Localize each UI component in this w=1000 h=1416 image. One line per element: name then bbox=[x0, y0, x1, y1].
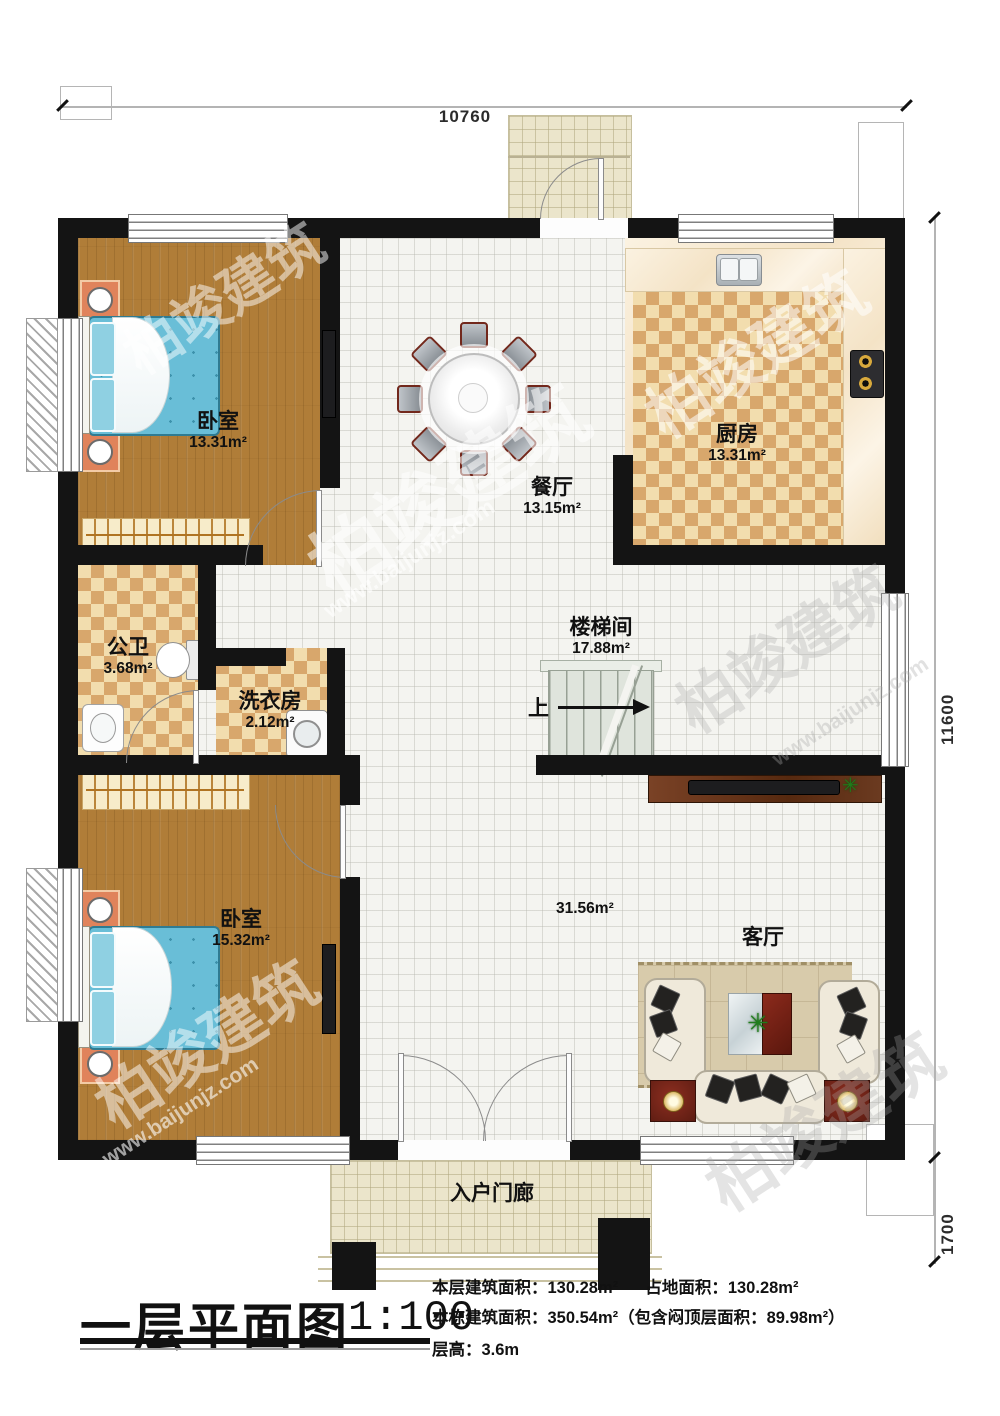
room-label-bedroom2: 卧室 15.32m² bbox=[212, 908, 270, 950]
wall-laundry-top bbox=[216, 648, 286, 666]
door-leaf bbox=[193, 690, 199, 764]
stairs-up-label: 上 bbox=[528, 692, 549, 722]
room-area: 13.15m² bbox=[523, 500, 581, 518]
dining-table-center bbox=[458, 383, 488, 413]
info-line-3: 层高：3.6m bbox=[432, 1336, 519, 1360]
dining-chair bbox=[460, 322, 488, 348]
room-name: 客厅 bbox=[742, 926, 784, 950]
room-label-entry-porch: 入户门廊 bbox=[450, 1182, 534, 1206]
wall-bedroom2-right bbox=[340, 877, 360, 1140]
room-area: 13.31m² bbox=[189, 434, 247, 452]
room-name: 公卫 bbox=[103, 636, 152, 660]
room-name: 卧室 bbox=[212, 908, 270, 932]
porch-pillar bbox=[332, 1242, 376, 1290]
dining-chair bbox=[460, 450, 488, 476]
window-shutter bbox=[26, 318, 58, 472]
room-name: 厨房 bbox=[708, 423, 766, 447]
wall-laundry-right bbox=[327, 648, 345, 755]
plant-icon: ✳ bbox=[842, 776, 859, 796]
side-table bbox=[824, 1080, 870, 1122]
wall-bedroom2-right-stub bbox=[340, 775, 360, 805]
tv bbox=[322, 944, 336, 1034]
room-label-bedroom1: 卧室 13.31m² bbox=[189, 410, 247, 452]
door-leaf bbox=[340, 805, 346, 879]
wardrobe bbox=[82, 772, 250, 810]
wall-stair-bottom bbox=[536, 755, 885, 775]
door-leaf bbox=[398, 1053, 404, 1142]
window-shutter bbox=[26, 868, 58, 1022]
room-area: 15.32m² bbox=[212, 932, 270, 950]
dining-chair bbox=[397, 385, 423, 413]
corner-reference-box bbox=[60, 86, 112, 120]
wall-bedroom2-top bbox=[58, 755, 360, 775]
stove-burner-icon bbox=[859, 355, 872, 368]
side-table bbox=[650, 1080, 696, 1122]
plant-icon: ✳ bbox=[747, 1010, 769, 1036]
room-label-dining: 餐厅 13.15m² bbox=[523, 476, 581, 518]
window bbox=[128, 214, 288, 243]
tv bbox=[322, 330, 336, 418]
room-label-laundry: 洗衣房 2.12m² bbox=[239, 690, 302, 732]
flue-box bbox=[858, 122, 904, 220]
floor-plan-page: { "watermark": { "logo": "柏竣建筑", "url": … bbox=[0, 0, 1000, 1416]
pillow bbox=[90, 378, 116, 432]
nightstand bbox=[80, 432, 120, 472]
lamp-icon bbox=[87, 287, 113, 313]
wall-bathroom-right bbox=[198, 565, 216, 690]
title-rule-thin bbox=[80, 1348, 430, 1350]
toilet-icon bbox=[156, 642, 190, 678]
room-name: 楼梯间 bbox=[570, 616, 633, 640]
door-leaf bbox=[598, 158, 604, 220]
nightstand bbox=[80, 280, 120, 320]
wall-kitchen-bottom bbox=[613, 545, 905, 565]
room-label-kitchen: 厨房 13.31m² bbox=[708, 423, 766, 465]
dining-chair bbox=[525, 385, 551, 413]
window bbox=[55, 868, 83, 1022]
stove-burner-icon bbox=[859, 377, 872, 390]
window bbox=[196, 1136, 350, 1165]
window bbox=[881, 593, 909, 767]
window bbox=[55, 318, 83, 472]
room-area: 17.88m² bbox=[570, 640, 633, 658]
wardrobe-rod bbox=[86, 789, 244, 791]
nightstand bbox=[80, 1044, 120, 1084]
dimension-top-value: 10760 bbox=[425, 107, 505, 127]
room-name: 入户门廊 bbox=[450, 1182, 534, 1206]
kitchen-counter-right bbox=[843, 248, 887, 558]
entrance-opening bbox=[398, 1140, 570, 1160]
living-area-value: 31.56m² bbox=[556, 900, 614, 918]
title-rule bbox=[80, 1338, 430, 1344]
nightstand bbox=[80, 890, 120, 930]
wall-bedroom1-bottom bbox=[58, 545, 263, 565]
tv bbox=[688, 780, 840, 795]
room-area: 13.31m² bbox=[708, 447, 766, 465]
room-name: 洗衣房 bbox=[239, 690, 302, 714]
door-leaf bbox=[316, 490, 322, 567]
basin-bowl bbox=[90, 713, 116, 743]
door-leaf bbox=[566, 1053, 572, 1142]
room-area: 2.12m² bbox=[239, 714, 302, 732]
room-name: 卧室 bbox=[189, 410, 247, 434]
lamp-icon bbox=[87, 897, 113, 923]
wash-basin bbox=[82, 704, 124, 752]
info-line-1: 本层建筑面积：130.28m² 占地面积：130.28m² bbox=[432, 1274, 798, 1298]
sink-basin bbox=[739, 258, 758, 281]
window bbox=[678, 214, 834, 243]
floor-area: 本层建筑面积：130.28m² bbox=[432, 1279, 618, 1297]
lamp-icon bbox=[663, 1091, 684, 1112]
room-label-living: 客厅 bbox=[742, 926, 784, 950]
room-label-stairwell: 楼梯间 17.88m² bbox=[570, 616, 633, 658]
lamp-icon bbox=[87, 1051, 113, 1077]
lamp-icon bbox=[87, 439, 113, 465]
sink-basin bbox=[720, 258, 739, 281]
pillow bbox=[90, 990, 116, 1046]
dimension-bottom-right-value: 1700 bbox=[938, 1165, 958, 1255]
pillow bbox=[90, 322, 116, 376]
dimension-right-value: 11600 bbox=[938, 635, 958, 745]
wardrobe-rod bbox=[86, 534, 244, 536]
stair-arrow-icon bbox=[633, 699, 650, 715]
room-label-bathroom: 公卫 3.68m² bbox=[103, 636, 152, 678]
dimension-line-right bbox=[934, 218, 936, 1264]
window bbox=[640, 1136, 794, 1165]
stair-direction-line bbox=[558, 706, 638, 709]
back-porch-step-line bbox=[508, 156, 630, 158]
land-area: 占地面积：130.28m² bbox=[645, 1279, 798, 1297]
room-area: 3.68m² bbox=[103, 660, 152, 678]
lamp-icon bbox=[837, 1091, 858, 1112]
room-name: 餐厅 bbox=[523, 476, 581, 500]
info-line-2: 本栋建筑面积：350.54m²（包含闷顶层面积：89.98m²） bbox=[432, 1304, 845, 1328]
pillow bbox=[90, 932, 116, 988]
door-opening bbox=[540, 218, 628, 238]
